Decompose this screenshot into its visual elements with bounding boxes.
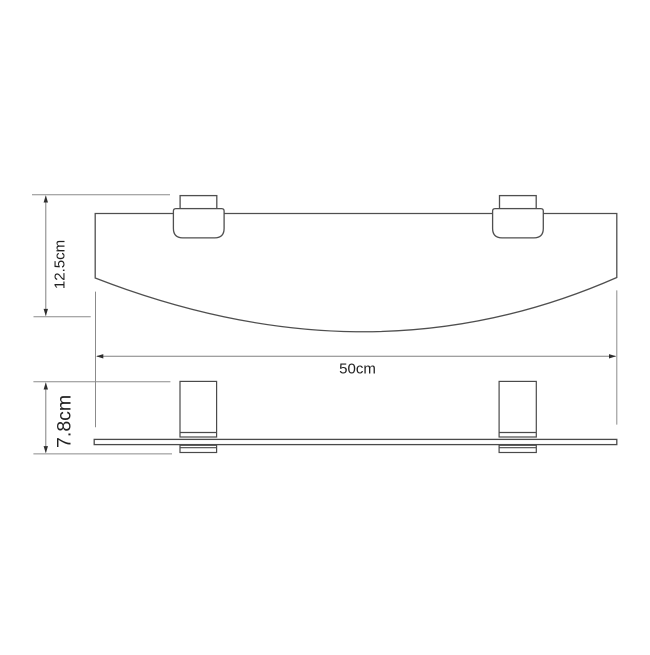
svg-text:7.8cm: 7.8cm: [54, 395, 76, 448]
svg-text:50cm: 50cm: [339, 361, 376, 378]
svg-text:12.5cm: 12.5cm: [51, 240, 68, 289]
